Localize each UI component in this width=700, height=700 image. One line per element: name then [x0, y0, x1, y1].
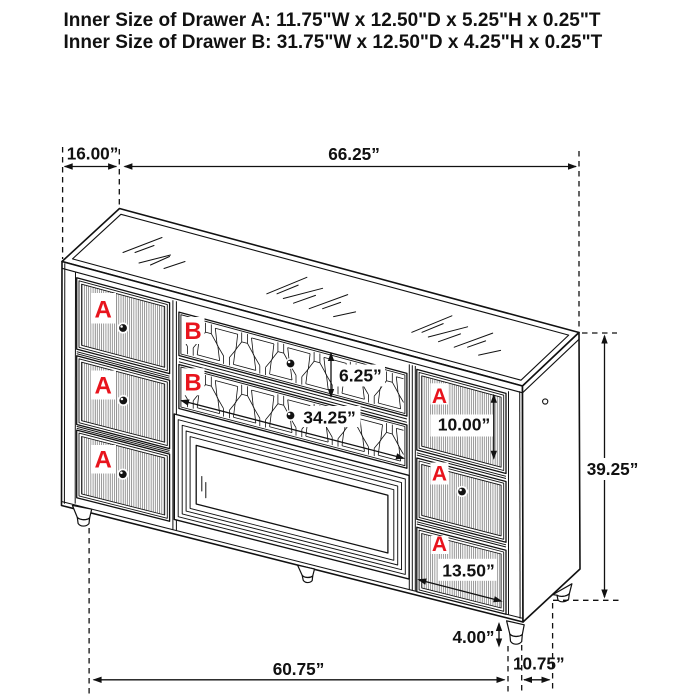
svg-text:4.00”: 4.00”: [452, 627, 494, 647]
svg-text:A: A: [432, 385, 447, 408]
svg-text:A: A: [95, 296, 112, 323]
svg-text:A: A: [95, 372, 112, 399]
svg-text:A: A: [432, 462, 447, 485]
svg-text:10.00”: 10.00”: [438, 415, 491, 435]
svg-text:6.25”: 6.25”: [339, 366, 382, 386]
svg-text:39.25”: 39.25”: [587, 459, 639, 479]
svg-text:13.50”: 13.50”: [442, 560, 495, 580]
svg-text:A: A: [95, 447, 112, 474]
svg-text:Inner Size of Drawer A: 11.75": Inner Size of Drawer A: 11.75"W x 12.50"…: [64, 10, 601, 31]
svg-text:B: B: [184, 369, 201, 396]
svg-text:Inner Size of Drawer B: 31.75": Inner Size of Drawer B: 31.75"W x 12.50"…: [64, 32, 603, 53]
svg-text:10.75”: 10.75”: [513, 654, 565, 674]
svg-text:60.75”: 60.75”: [273, 659, 325, 679]
svg-text:34.25”: 34.25”: [303, 407, 356, 427]
svg-text:A: A: [432, 533, 447, 556]
svg-text:16.00”: 16.00”: [67, 144, 119, 164]
svg-text:B: B: [184, 318, 201, 345]
svg-text:66.25”: 66.25”: [328, 144, 380, 164]
